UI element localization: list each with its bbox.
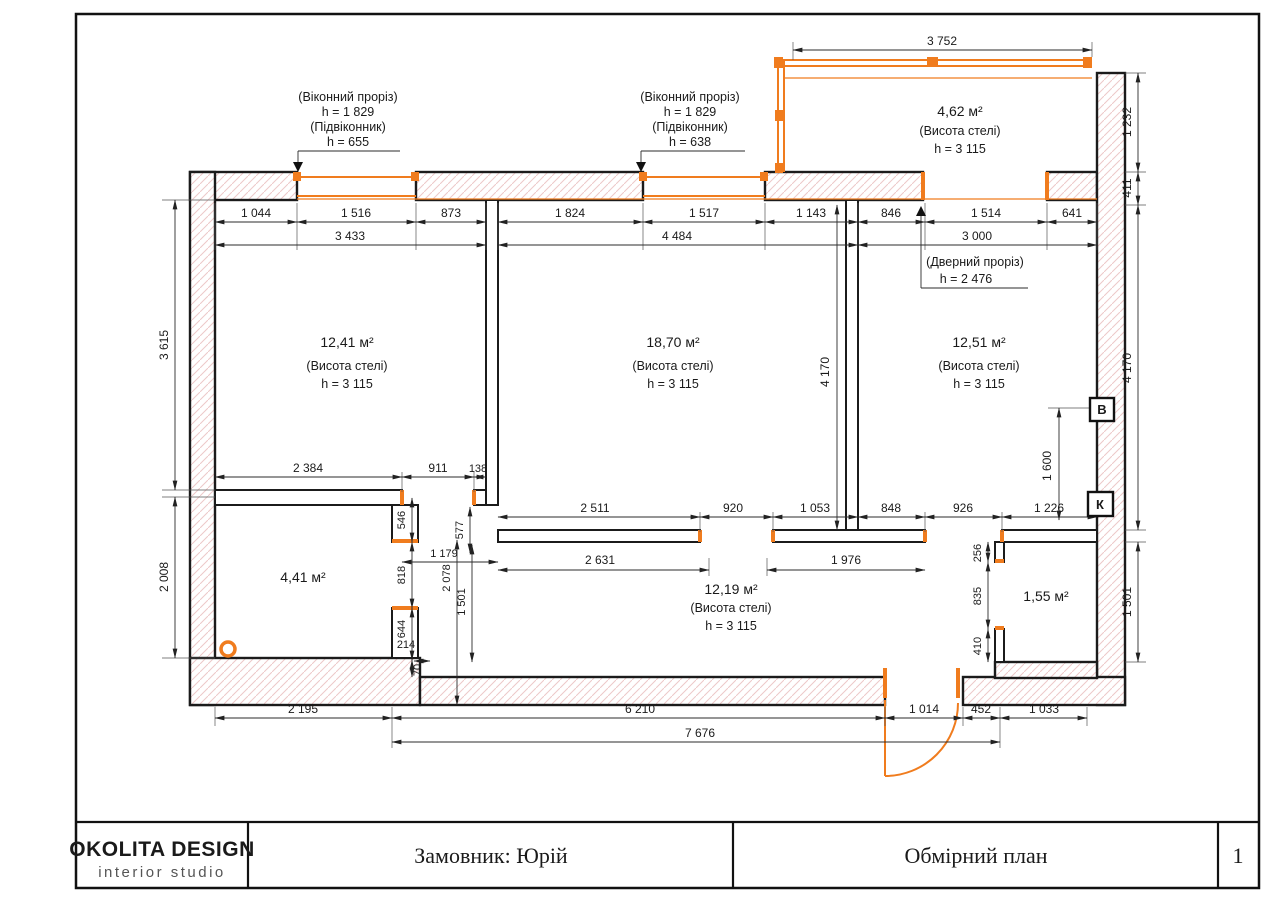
- sheet-title: Обмірний план: [904, 843, 1047, 868]
- room2-height: h = 3 115: [647, 377, 699, 391]
- closet-area: 1,55 м²: [1023, 588, 1069, 604]
- dim: 1 501: [456, 588, 468, 616]
- dim: 2 195: [288, 702, 318, 716]
- client-label: Замовник: Юрій: [414, 843, 568, 868]
- sheet-border: [76, 14, 1259, 888]
- room3-height: h = 3 115: [953, 377, 1005, 391]
- dim: 1 033: [1029, 702, 1059, 716]
- dim: 1 501: [1120, 587, 1134, 617]
- window-annotation-mid: (Віконний проріз) h = 1 829 (Підвіконник…: [636, 90, 745, 172]
- dim: 1 179: [430, 548, 458, 560]
- dim: 1 514: [971, 206, 1001, 220]
- dim: 926: [953, 501, 973, 515]
- dim-balcony-width: 3 752: [927, 34, 957, 48]
- dim: 641: [1062, 206, 1082, 220]
- dim: 70: [412, 664, 424, 676]
- annotation-line: h = 638: [669, 135, 711, 149]
- room3-note: (Висота стелі): [938, 359, 1019, 373]
- hall-note: (Висота стелі): [690, 601, 771, 615]
- marker-k: К: [1096, 497, 1104, 512]
- dim: 1 014: [909, 702, 939, 716]
- hall-height: h = 3 115: [705, 619, 757, 633]
- dim: 1 232: [1120, 107, 1134, 137]
- entry-door: [883, 668, 960, 776]
- annotation-line: (Підвіконник): [310, 120, 386, 134]
- dim: 3 433: [335, 229, 365, 243]
- dim: 452: [971, 702, 991, 716]
- room1-note: (Висота стелі): [306, 359, 387, 373]
- balcony-area: 4,62 м²: [937, 103, 983, 119]
- dim: 2 008: [157, 562, 171, 592]
- room1-height: h = 3 115: [321, 377, 373, 391]
- room1-area: 12,41 м²: [320, 334, 374, 350]
- dim: 818: [396, 566, 408, 584]
- annotation-line: h = 1 829: [664, 105, 717, 119]
- dim: 3 000: [962, 229, 992, 243]
- room3-area: 12,51 м²: [952, 334, 1006, 350]
- dim: 411: [1120, 178, 1134, 197]
- room2-area: 18,70 м²: [646, 334, 700, 350]
- page-number: 1: [1233, 843, 1244, 868]
- dim: 3 615: [157, 330, 171, 360]
- dim: 2 631: [585, 553, 615, 567]
- dim: 835: [972, 587, 984, 605]
- dim: 2 384: [293, 461, 323, 475]
- balcony-note: (Висота стелі): [919, 124, 1000, 138]
- room2-note: (Висота стелі): [632, 359, 713, 373]
- floor-plan-svg: 3 752 1 044 1 516 873 1 824 1 517 1 143 …: [0, 0, 1280, 904]
- dim: 4 170: [818, 357, 832, 387]
- dim: 7 676: [685, 726, 715, 740]
- balcony-height: h = 3 115: [934, 142, 986, 156]
- dim: 410: [972, 637, 984, 655]
- dim: 546: [396, 511, 408, 529]
- dim: 1 976: [831, 553, 861, 567]
- dim: 2 511: [580, 501, 609, 515]
- dim: 1 824: [555, 206, 585, 220]
- dim: 1 600: [1040, 451, 1054, 481]
- dim: 4 170: [1120, 353, 1134, 383]
- logo-title: OKOLITA DESIGN: [69, 838, 255, 861]
- logo-subtitle: interior studio: [98, 864, 226, 881]
- annotation-line: h = 1 829: [322, 105, 375, 119]
- annotation-line: (Віконний проріз): [298, 90, 397, 104]
- dim: 6 210: [625, 702, 655, 716]
- room4-area: 4,41 м²: [280, 569, 326, 585]
- dim: 138: [469, 463, 487, 475]
- dim: 1 053: [800, 501, 830, 515]
- hall-area: 12,19 м²: [704, 581, 758, 597]
- drawing-sheet: 3 752 1 044 1 516 873 1 824 1 517 1 143 …: [0, 0, 1280, 904]
- riser-circle: [221, 642, 235, 656]
- dim: 644: [396, 620, 408, 638]
- dim: 1 516: [341, 206, 371, 220]
- dim: 848: [881, 501, 901, 515]
- window-annotation-left: (Віконний проріз) h = 1 829 (Підвіконник…: [293, 90, 400, 172]
- title-block: OKOLITA DESIGN interior studio Замовник:…: [69, 822, 1259, 888]
- dim: 873: [441, 206, 461, 220]
- annotation-line: (Підвіконник): [652, 120, 728, 134]
- dim: 577: [454, 521, 466, 539]
- dim: 846: [881, 206, 901, 220]
- dim: 2 078: [441, 564, 453, 592]
- dim: 4 484: [662, 229, 692, 243]
- dim: 1 226: [1034, 501, 1064, 515]
- annotation-line: h = 655: [327, 135, 369, 149]
- annotation-line: h = 2 476: [940, 272, 993, 286]
- dim: 1 143: [796, 206, 826, 220]
- dim: 1 517: [689, 206, 719, 220]
- dim: 911: [428, 461, 447, 475]
- dim: 920: [723, 501, 743, 515]
- marker-v: В: [1097, 402, 1106, 417]
- dim: 256: [972, 544, 984, 562]
- dim: 1 044: [241, 206, 271, 220]
- annotation-line: (Дверний проріз): [926, 255, 1024, 269]
- room-labels: 12,41 м² (Висота стелі) h = 3 115 18,70 …: [280, 103, 1069, 633]
- annotation-line: (Віконний проріз): [640, 90, 739, 104]
- dim: 214: [397, 639, 415, 651]
